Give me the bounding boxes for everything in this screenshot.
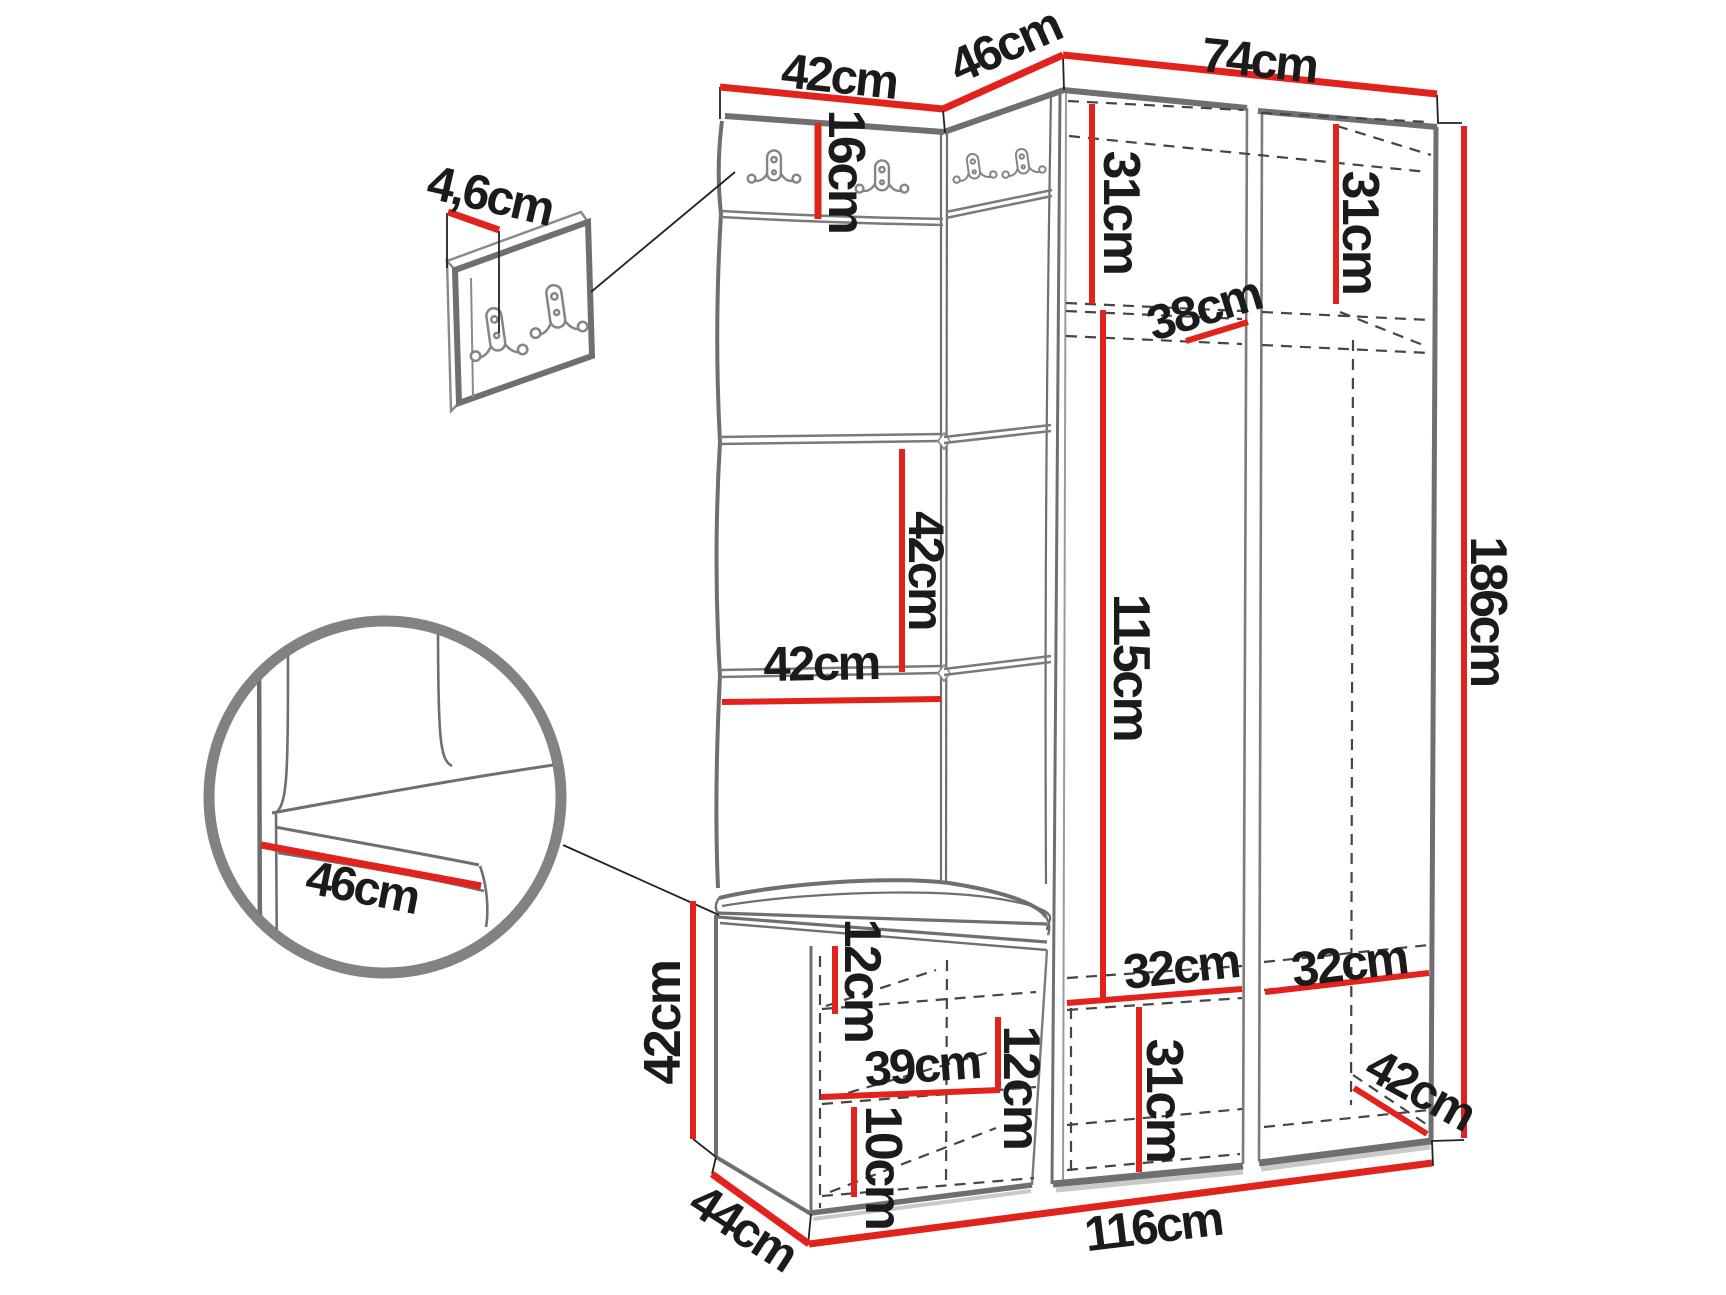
svg-text:42cm: 42cm: [763, 636, 879, 692]
svg-text:31cm: 31cm: [1135, 1039, 1193, 1162]
svg-text:42cm: 42cm: [634, 961, 692, 1084]
svg-text:31cm: 31cm: [1092, 151, 1150, 274]
svg-text:39cm: 39cm: [863, 1035, 982, 1097]
svg-text:186cm: 186cm: [1459, 536, 1517, 686]
svg-text:115cm: 115cm: [1102, 594, 1160, 741]
svg-text:12cm: 12cm: [992, 1026, 1050, 1149]
svg-text:12cm: 12cm: [833, 919, 891, 1042]
svg-text:10cm: 10cm: [854, 1106, 912, 1229]
svg-text:42cm: 42cm: [898, 511, 954, 629]
svg-text:31cm: 31cm: [1331, 171, 1389, 294]
svg-text:16cm: 16cm: [817, 110, 875, 233]
